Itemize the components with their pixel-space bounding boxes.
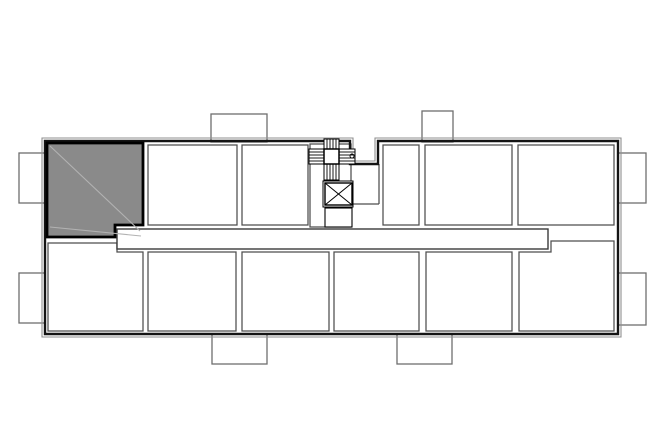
room-top-4[interactable] (383, 145, 419, 225)
room-bottom-3[interactable] (242, 252, 329, 331)
balcony-right-bottom (618, 273, 646, 325)
stair-flight-2 (324, 164, 339, 180)
room-top-3[interactable] (242, 145, 308, 225)
room-top-2[interactable] (148, 145, 237, 225)
stair-flight-3 (309, 149, 324, 164)
stair-landing (324, 149, 339, 164)
room-bottom-4[interactable] (334, 252, 419, 331)
room-bottom-6[interactable] (519, 241, 614, 331)
balcony-left-top (19, 153, 45, 203)
balcony-top-2 (422, 111, 453, 142)
room-bottom-1[interactable] (48, 243, 143, 331)
balcony-left-bottom (19, 273, 45, 323)
shaft-box (325, 208, 352, 227)
balcony-right-top (618, 153, 646, 203)
room-bottom-2[interactable] (148, 252, 236, 331)
balcony-bottom-1 (212, 334, 267, 364)
stair-flight-4 (339, 149, 355, 164)
room-bottom-5[interactable] (426, 252, 512, 331)
corridor[interactable] (117, 229, 548, 249)
stair-flight-1 (324, 139, 339, 149)
balcony-bottom-2 (397, 334, 452, 364)
room-top-5[interactable] (425, 145, 512, 225)
floor-plan-canvas (0, 0, 665, 443)
floor-plan (0, 0, 665, 443)
room-top-6[interactable] (518, 145, 614, 225)
